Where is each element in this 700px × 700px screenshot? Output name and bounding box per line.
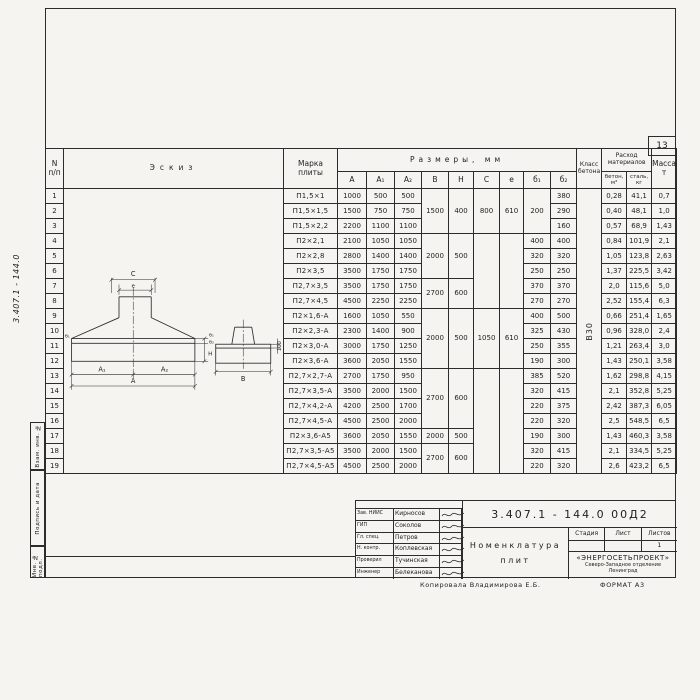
col-header-class: Класс бетона: [577, 149, 602, 189]
mass: 1,65: [652, 309, 677, 324]
plate-mark: П2×2,3-А: [284, 324, 338, 339]
concrete-volume: 0,66: [602, 309, 627, 324]
dim-b1: 325: [524, 324, 551, 339]
dim-a2: 1500: [395, 384, 422, 399]
row-number: 5: [46, 249, 64, 264]
col-header-concrete: бетон, м³: [602, 172, 627, 189]
dim-a: 4500: [338, 294, 367, 309]
frame-stamp-label: Инв. № подл.: [32, 547, 44, 577]
concrete-volume: 2,1: [602, 444, 627, 459]
dim-b: 2700: [422, 369, 449, 429]
org-name: «ЭНЕРГОСЕТЬПРОЕКТ»: [569, 554, 677, 562]
concrete-volume: 1,21: [602, 339, 627, 354]
dim-c: [474, 234, 500, 309]
dim-a2: 500: [395, 189, 422, 204]
signature-name: Коплевская: [394, 544, 440, 555]
steel-weight: 298,8: [627, 369, 652, 384]
dim-h: 400: [449, 189, 474, 234]
dim-a: 3600: [338, 354, 367, 369]
plate-mark: П2,7×4,5: [284, 294, 338, 309]
dim-b1: 385: [524, 369, 551, 384]
steel-weight: 250,1: [627, 354, 652, 369]
dim-b2: 250: [551, 264, 577, 279]
dim-h: 500: [449, 234, 474, 279]
frame-stamp-box: Подпись и дата: [30, 470, 45, 546]
mass: 5,25: [652, 384, 677, 399]
concrete-volume: 2,42: [602, 399, 627, 414]
doc-number: 3.407.1 - 144.0 00Д2: [462, 501, 677, 528]
title-block-right: Стадия Лист Листов 1 «ЭНЕРГОСЕТЬПРОЕКТ» …: [568, 528, 677, 579]
plate-mark: П1,5×2,2: [284, 219, 338, 234]
dim-c: 800: [474, 189, 500, 234]
dim-label-b: B: [241, 375, 246, 383]
dim-e: [500, 369, 524, 474]
dim-b2: 520: [551, 369, 577, 384]
concrete-volume: 2,6: [602, 459, 627, 474]
dim-a2: 1250: [395, 339, 422, 354]
steel-weight: 123,8: [627, 249, 652, 264]
row-number: 14: [46, 384, 64, 399]
side-doc-number: 3.407.1 - 144.0: [8, 228, 24, 348]
signature-role: ГИП: [356, 521, 394, 532]
concrete-volume: 2,0: [602, 279, 627, 294]
plate-mark: П1,5×1: [284, 189, 338, 204]
mass: 2,1: [652, 234, 677, 249]
dim-a2: 1050: [395, 234, 422, 249]
col-header-e: e: [500, 172, 524, 189]
dim-b2: 160: [551, 219, 577, 234]
col-header-marka: Марка плиты: [284, 149, 338, 189]
drawing-title-line1: Номенклатура: [470, 539, 561, 553]
drawing-title: Номенклатура плит: [462, 528, 568, 579]
stage-sheet-header: Стадия Лист Листов: [569, 528, 677, 541]
dim-b2: 355: [551, 339, 577, 354]
signature-name: Соколов: [394, 521, 440, 532]
dim-b2: 290: [551, 204, 577, 219]
row-number: 19: [46, 459, 64, 474]
concrete-volume: 0,96: [602, 324, 627, 339]
dim-a: 2300: [338, 324, 367, 339]
mass: 6,5: [652, 459, 677, 474]
steel-weight: 251,4: [627, 309, 652, 324]
frame-stamp-box: Инв. № подл.: [30, 546, 45, 578]
dim-b2: 430: [551, 324, 577, 339]
dim-h: 600: [449, 369, 474, 429]
dim-a2: 950: [395, 369, 422, 384]
steel-weight: 41,1: [627, 189, 652, 204]
dim-label-a1: A₁: [98, 366, 106, 374]
dim-b: 1500: [422, 189, 449, 234]
steel-weight: 155,4: [627, 294, 652, 309]
drawing-title-line2: плит: [500, 554, 530, 568]
dim-b2: 300: [551, 429, 577, 444]
dim-b2: 400: [551, 234, 577, 249]
dim-b2: 500: [551, 309, 577, 324]
stage-value: [569, 541, 605, 551]
dim-a1: 1050: [367, 234, 395, 249]
plate-mark: П2×3,0-А: [284, 339, 338, 354]
row-number: 15: [46, 399, 64, 414]
dim-a1: 2050: [367, 354, 395, 369]
steel-weight: 334,5: [627, 444, 652, 459]
row-number: 1: [46, 189, 64, 204]
plate-mark: П2×2,8: [284, 249, 338, 264]
dim-a1: 1750: [367, 369, 395, 384]
dim-a1: 1750: [367, 279, 395, 294]
dim-a: 3500: [338, 444, 367, 459]
dim-a2: 1100: [395, 219, 422, 234]
steel-weight: 423,2: [627, 459, 652, 474]
dim-b: 2000: [422, 309, 449, 369]
dim-label-b2: б₂: [209, 339, 214, 345]
col-header-a2: A₂: [395, 172, 422, 189]
dim-a1: 2500: [367, 399, 395, 414]
plate-mark: П2×1,6-А: [284, 309, 338, 324]
dim-label-h: H: [208, 352, 212, 358]
col-header-b2: б₂: [551, 172, 577, 189]
mass: 6,3: [652, 294, 677, 309]
plate-mark: П2×2,1: [284, 234, 338, 249]
dim-b2: 300: [551, 354, 577, 369]
dim-b1: 200: [524, 189, 551, 234]
dim-b2: 415: [551, 444, 577, 459]
organization: «ЭНЕРГОСЕТЬПРОЕКТ» Северо-Западное отдел…: [569, 554, 677, 582]
signature-scribble: [440, 521, 461, 532]
concrete-volume: 1,62: [602, 369, 627, 384]
col-header-b: B: [422, 172, 449, 189]
steel-weight: 68,9: [627, 219, 652, 234]
mass: 3,42: [652, 264, 677, 279]
row-number: 13: [46, 369, 64, 384]
title-block: 3.407.1 - 144.0 00Д2 Номенклатура плит С…: [355, 500, 676, 578]
mass: 3,58: [652, 354, 677, 369]
row-number: 10: [46, 324, 64, 339]
concrete-volume: 1,05: [602, 249, 627, 264]
dim-a: 2800: [338, 249, 367, 264]
dim-b2: 320: [551, 414, 577, 429]
steel-weight: 548,5: [627, 414, 652, 429]
dim-b2: 320: [551, 249, 577, 264]
mass: 6,05: [652, 399, 677, 414]
sketch-cell: C e A₁ A₂ A б₁ б₂ H б₁ B 100: [64, 189, 284, 474]
col-header-b1: б₁: [524, 172, 551, 189]
signature-row: Гл. спец.Петров: [356, 533, 461, 545]
dim-b1: 190: [524, 354, 551, 369]
signature-name: Тучинская: [394, 556, 440, 567]
row-number: 9: [46, 309, 64, 324]
plate-mark: П2,7×3,5-А5: [284, 444, 338, 459]
signature-scribble: [440, 544, 461, 555]
dim-c: 1050: [474, 309, 500, 369]
stage-label: Стадия: [569, 528, 605, 540]
dim-b1: 400: [524, 234, 551, 249]
row-number: 4: [46, 234, 64, 249]
mass: 6,5: [652, 414, 677, 429]
row-number: 8: [46, 294, 64, 309]
dim-a2: 2000: [395, 459, 422, 474]
dim-label-e: e: [131, 283, 135, 289]
concrete-volume: 0,40: [602, 204, 627, 219]
dim-b1: 220: [524, 459, 551, 474]
dim-a: 2100: [338, 234, 367, 249]
dim-b1: 250: [524, 264, 551, 279]
dim-a2: 550: [395, 309, 422, 324]
dim-h: 500: [449, 309, 474, 369]
frame-bottom-line: [45, 556, 355, 557]
col-header-mass: Масса, т: [652, 149, 677, 189]
row-number: 7: [46, 279, 64, 294]
dim-a1: 2050: [367, 429, 395, 444]
sheets-value: 1: [642, 541, 677, 551]
dim-a1: 500: [367, 189, 395, 204]
dim-b1: 370: [524, 279, 551, 294]
dim-h: 600: [449, 444, 474, 474]
mass: 2,63: [652, 249, 677, 264]
signature-name: Белеканова: [394, 568, 440, 579]
dim-a: 3500: [338, 264, 367, 279]
mass: 1,0: [652, 204, 677, 219]
mass: 5,25: [652, 444, 677, 459]
dim-c: [474, 369, 500, 474]
plate-mark: П2×3,6-А5: [284, 429, 338, 444]
steel-weight: 352,8: [627, 384, 652, 399]
org-city: Ленинград: [569, 568, 677, 574]
signatures-table: Зав. НИИСКирносовГИПСоколовГл. спец.Петр…: [356, 508, 462, 579]
plate-cross-section-sketch: C e A₁ A₂ A б₁ б₂ H б₁ B 100: [64, 255, 284, 405]
dim-a1: 1400: [367, 324, 395, 339]
col-header-c: C: [474, 172, 500, 189]
dim-a2: 2250: [395, 294, 422, 309]
dim-a1: 2000: [367, 444, 395, 459]
dim-a2: 1400: [395, 249, 422, 264]
mass: 3,0: [652, 339, 677, 354]
signature-scribble: [440, 556, 461, 567]
dim-a1: 2500: [367, 414, 395, 429]
table-row: 1: [46, 189, 677, 204]
signature-role: Инженер: [356, 568, 394, 579]
plate-mark: П2,7×4,5-А: [284, 414, 338, 429]
concrete-volume: 1,43: [602, 429, 627, 444]
row-number: 11: [46, 339, 64, 354]
dim-a2: 900: [395, 324, 422, 339]
steel-weight: 263,4: [627, 339, 652, 354]
steel-weight: 328,0: [627, 324, 652, 339]
dim-a1: 2500: [367, 459, 395, 474]
signature-role: Гл. спец.: [356, 533, 394, 544]
frame-stamp-label: Подпись и дата: [35, 482, 41, 535]
frame-stamp-box: Взам. инв. №: [30, 422, 45, 470]
concrete-volume: 2,1: [602, 384, 627, 399]
dim-h: 500: [449, 429, 474, 444]
format-note: ФОРМАТ А3: [600, 581, 670, 589]
row-number: 3: [46, 219, 64, 234]
dim-b2: 320: [551, 459, 577, 474]
dim-b2: 380: [551, 189, 577, 204]
dim-b1: 320: [524, 249, 551, 264]
plate-mark: П2×3,5: [284, 264, 338, 279]
dim-a: 1000: [338, 189, 367, 204]
col-header-sketch: Эскиз: [64, 149, 284, 189]
dim-a: 4500: [338, 459, 367, 474]
dim-a2: 1750: [395, 264, 422, 279]
concrete-volume: 1,37: [602, 264, 627, 279]
dim-a: 4500: [338, 414, 367, 429]
steel-weight: 387,3: [627, 399, 652, 414]
col-header-sizes: Размеры, мм: [338, 149, 577, 172]
col-header-h: H: [449, 172, 474, 189]
dim-a1: 750: [367, 204, 395, 219]
dim-b1: 220: [524, 399, 551, 414]
signature-row: ИнженерБелеканова: [356, 568, 461, 579]
dim-a: 2700: [338, 369, 367, 384]
dim-a: 1600: [338, 309, 367, 324]
steel-weight: 48,1: [627, 204, 652, 219]
concrete-class-cell: В30: [577, 189, 602, 474]
signature-role: Н. контр.: [356, 544, 394, 555]
mass: 4,15: [652, 369, 677, 384]
signature-row: Зав. НИИСКирносов: [356, 509, 461, 521]
dim-b: 2700: [422, 444, 449, 474]
dim-a2: 1750: [395, 279, 422, 294]
dim-e: 610: [500, 309, 524, 369]
dim-b2: 370: [551, 279, 577, 294]
dim-b: 2700: [422, 279, 449, 309]
stage-sheet-values: 1: [569, 541, 677, 552]
concrete-volume: 1,43: [602, 354, 627, 369]
copy-note: Копировала Владимирова Е.Б.: [420, 581, 600, 589]
dim-b1: 400: [524, 309, 551, 324]
drawing-sheet: 13 3.407.1 - 144.0 Взам. инв. №Подпись и…: [0, 0, 700, 700]
dim-b1: 220: [524, 414, 551, 429]
dim-label-b1: б₁: [209, 333, 214, 339]
dim-a: 1500: [338, 204, 367, 219]
signature-row: ГИПСоколов: [356, 521, 461, 533]
signature-scribble: [440, 568, 461, 579]
dim-label-b1-left: б₁: [65, 334, 70, 340]
row-number: 2: [46, 204, 64, 219]
dim-a: 4200: [338, 399, 367, 414]
plate-mark: П2,7×3,5-А: [284, 384, 338, 399]
plate-mark: П1,5×1,5: [284, 204, 338, 219]
nomenclature-table: N п/п Эскиз Марка плиты Размеры, мм Клас…: [45, 148, 677, 474]
concrete-volume: 0,28: [602, 189, 627, 204]
dim-b1: 190: [524, 429, 551, 444]
signature-name: Петров: [394, 533, 440, 544]
signature-name: Кирносов: [394, 509, 440, 520]
dim-a: 3600: [338, 429, 367, 444]
col-header-a1: A₁: [367, 172, 395, 189]
col-header-consumption: Расход материалов: [602, 149, 652, 172]
mass: 1,43: [652, 219, 677, 234]
dim-a2: 1550: [395, 354, 422, 369]
signature-scribble: [440, 533, 461, 544]
signature-role: Проверил: [356, 556, 394, 567]
col-header-num: N п/п: [46, 149, 64, 189]
steel-weight: 115,6: [627, 279, 652, 294]
dim-a1: 2250: [367, 294, 395, 309]
frame-stamp-label: Взам. инв. №: [35, 424, 41, 468]
sheet-value: [605, 541, 641, 551]
mass: 5,0: [652, 279, 677, 294]
mass: 2,4: [652, 324, 677, 339]
row-number: 12: [46, 354, 64, 369]
signature-row: Н. контр.Коплевская: [356, 544, 461, 556]
dim-b: 2000: [422, 429, 449, 444]
dim-a2: 1700: [395, 399, 422, 414]
concrete-volume: 0,57: [602, 219, 627, 234]
dim-a1: 1400: [367, 249, 395, 264]
dim-a: 3500: [338, 279, 367, 294]
dim-label-a2: A₂: [161, 366, 169, 374]
signature-role: Зав. НИИС: [356, 509, 394, 520]
dim-a1: 2000: [367, 384, 395, 399]
dim-a2: 2000: [395, 414, 422, 429]
side-doc-number-text: 3.407.1 - 144.0: [12, 254, 21, 323]
dim-e: 610: [500, 189, 524, 234]
dim-a: 2200: [338, 219, 367, 234]
dim-e: [500, 234, 524, 309]
dim-a1: 1750: [367, 264, 395, 279]
plate-mark: П2,7×2,7-А: [284, 369, 338, 384]
dim-b1: 270: [524, 294, 551, 309]
signature-row: ПроверилТучинская: [356, 556, 461, 568]
dim-b2: 270: [551, 294, 577, 309]
plate-mark: П2,7×3,5: [284, 279, 338, 294]
dim-a: 3500: [338, 384, 367, 399]
dim-a2: 750: [395, 204, 422, 219]
row-number: 6: [46, 264, 64, 279]
plate-mark: П2,7×4,5-А5: [284, 459, 338, 474]
mass: 0,7: [652, 189, 677, 204]
dim-b1: 250: [524, 339, 551, 354]
steel-weight: 460,3: [627, 429, 652, 444]
dim-b2: 375: [551, 399, 577, 414]
plate-mark: П2,7×4,2-А: [284, 399, 338, 414]
mass: 3,58: [652, 429, 677, 444]
concrete-volume: 2,52: [602, 294, 627, 309]
dim-a2: 1550: [395, 429, 422, 444]
sheet-label: Лист: [605, 528, 641, 540]
dim-a: 3000: [338, 339, 367, 354]
concrete-class-value: В30: [585, 322, 594, 341]
concrete-volume: 0,84: [602, 234, 627, 249]
dim-b1: 320: [524, 444, 551, 459]
dim-label-c: C: [131, 270, 136, 278]
col-header-a: A: [338, 172, 367, 189]
dim-label-a: A: [131, 377, 136, 385]
dim-b: 2000: [422, 234, 449, 279]
signature-scribble: [440, 509, 461, 520]
dim-a1: 1100: [367, 219, 395, 234]
steel-weight: 225,5: [627, 264, 652, 279]
row-number: 18: [46, 444, 64, 459]
row-number: 16: [46, 414, 64, 429]
dim-b1: 320: [524, 384, 551, 399]
dim-b2: 415: [551, 384, 577, 399]
concrete-volume: 2,5: [602, 414, 627, 429]
plate-mark: П2×3,6-А: [284, 354, 338, 369]
dim-h: 600: [449, 279, 474, 309]
col-header-steel: сталь, кг: [627, 172, 652, 189]
dim-a2: 1500: [395, 444, 422, 459]
dim-label-edge: 100: [277, 341, 283, 351]
steel-weight: 101,9: [627, 234, 652, 249]
row-number: 17: [46, 429, 64, 444]
dim-a1: 1050: [367, 309, 395, 324]
sheets-label: Листов: [642, 528, 677, 540]
dim-a1: 1750: [367, 339, 395, 354]
